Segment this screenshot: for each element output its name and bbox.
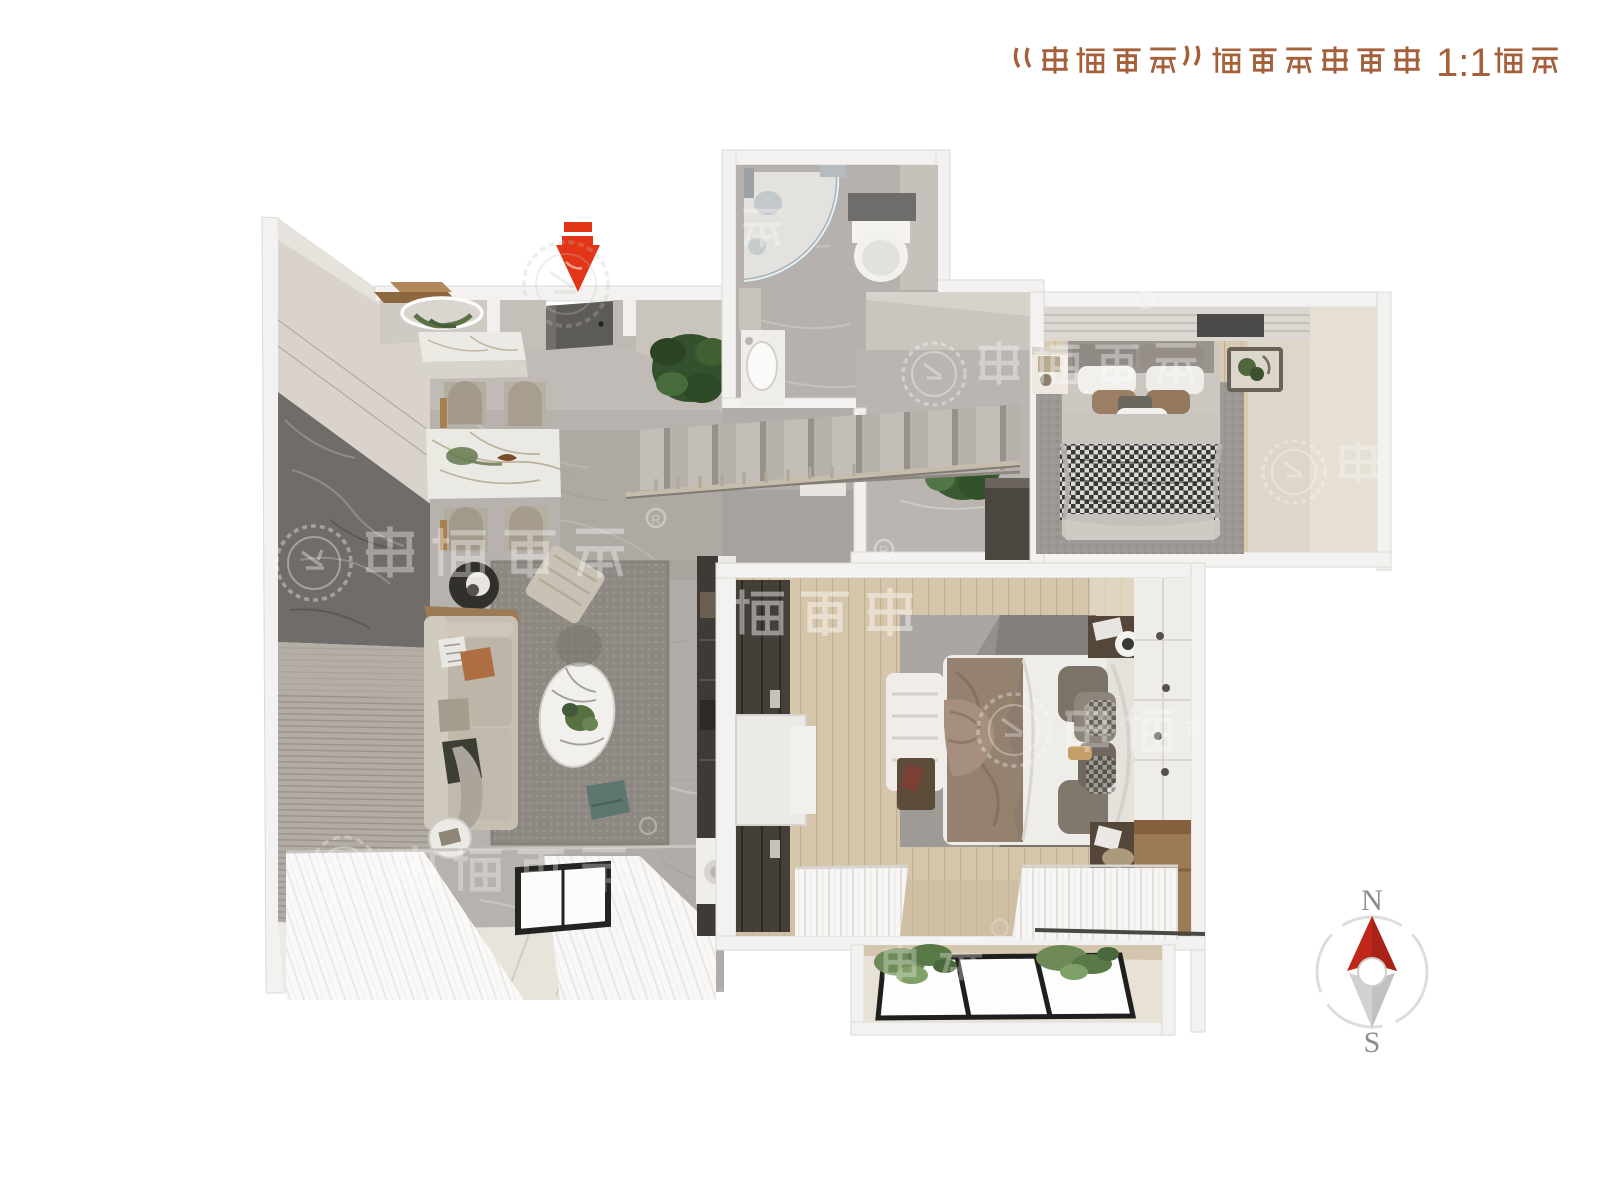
svg-text:S: S (1364, 1026, 1381, 1059)
svg-text:R: R (651, 512, 660, 527)
svg-text:N: N (1361, 884, 1383, 917)
svg-text:R: R (879, 543, 888, 558)
svg-text:1:1: 1:1 (1436, 41, 1492, 85)
